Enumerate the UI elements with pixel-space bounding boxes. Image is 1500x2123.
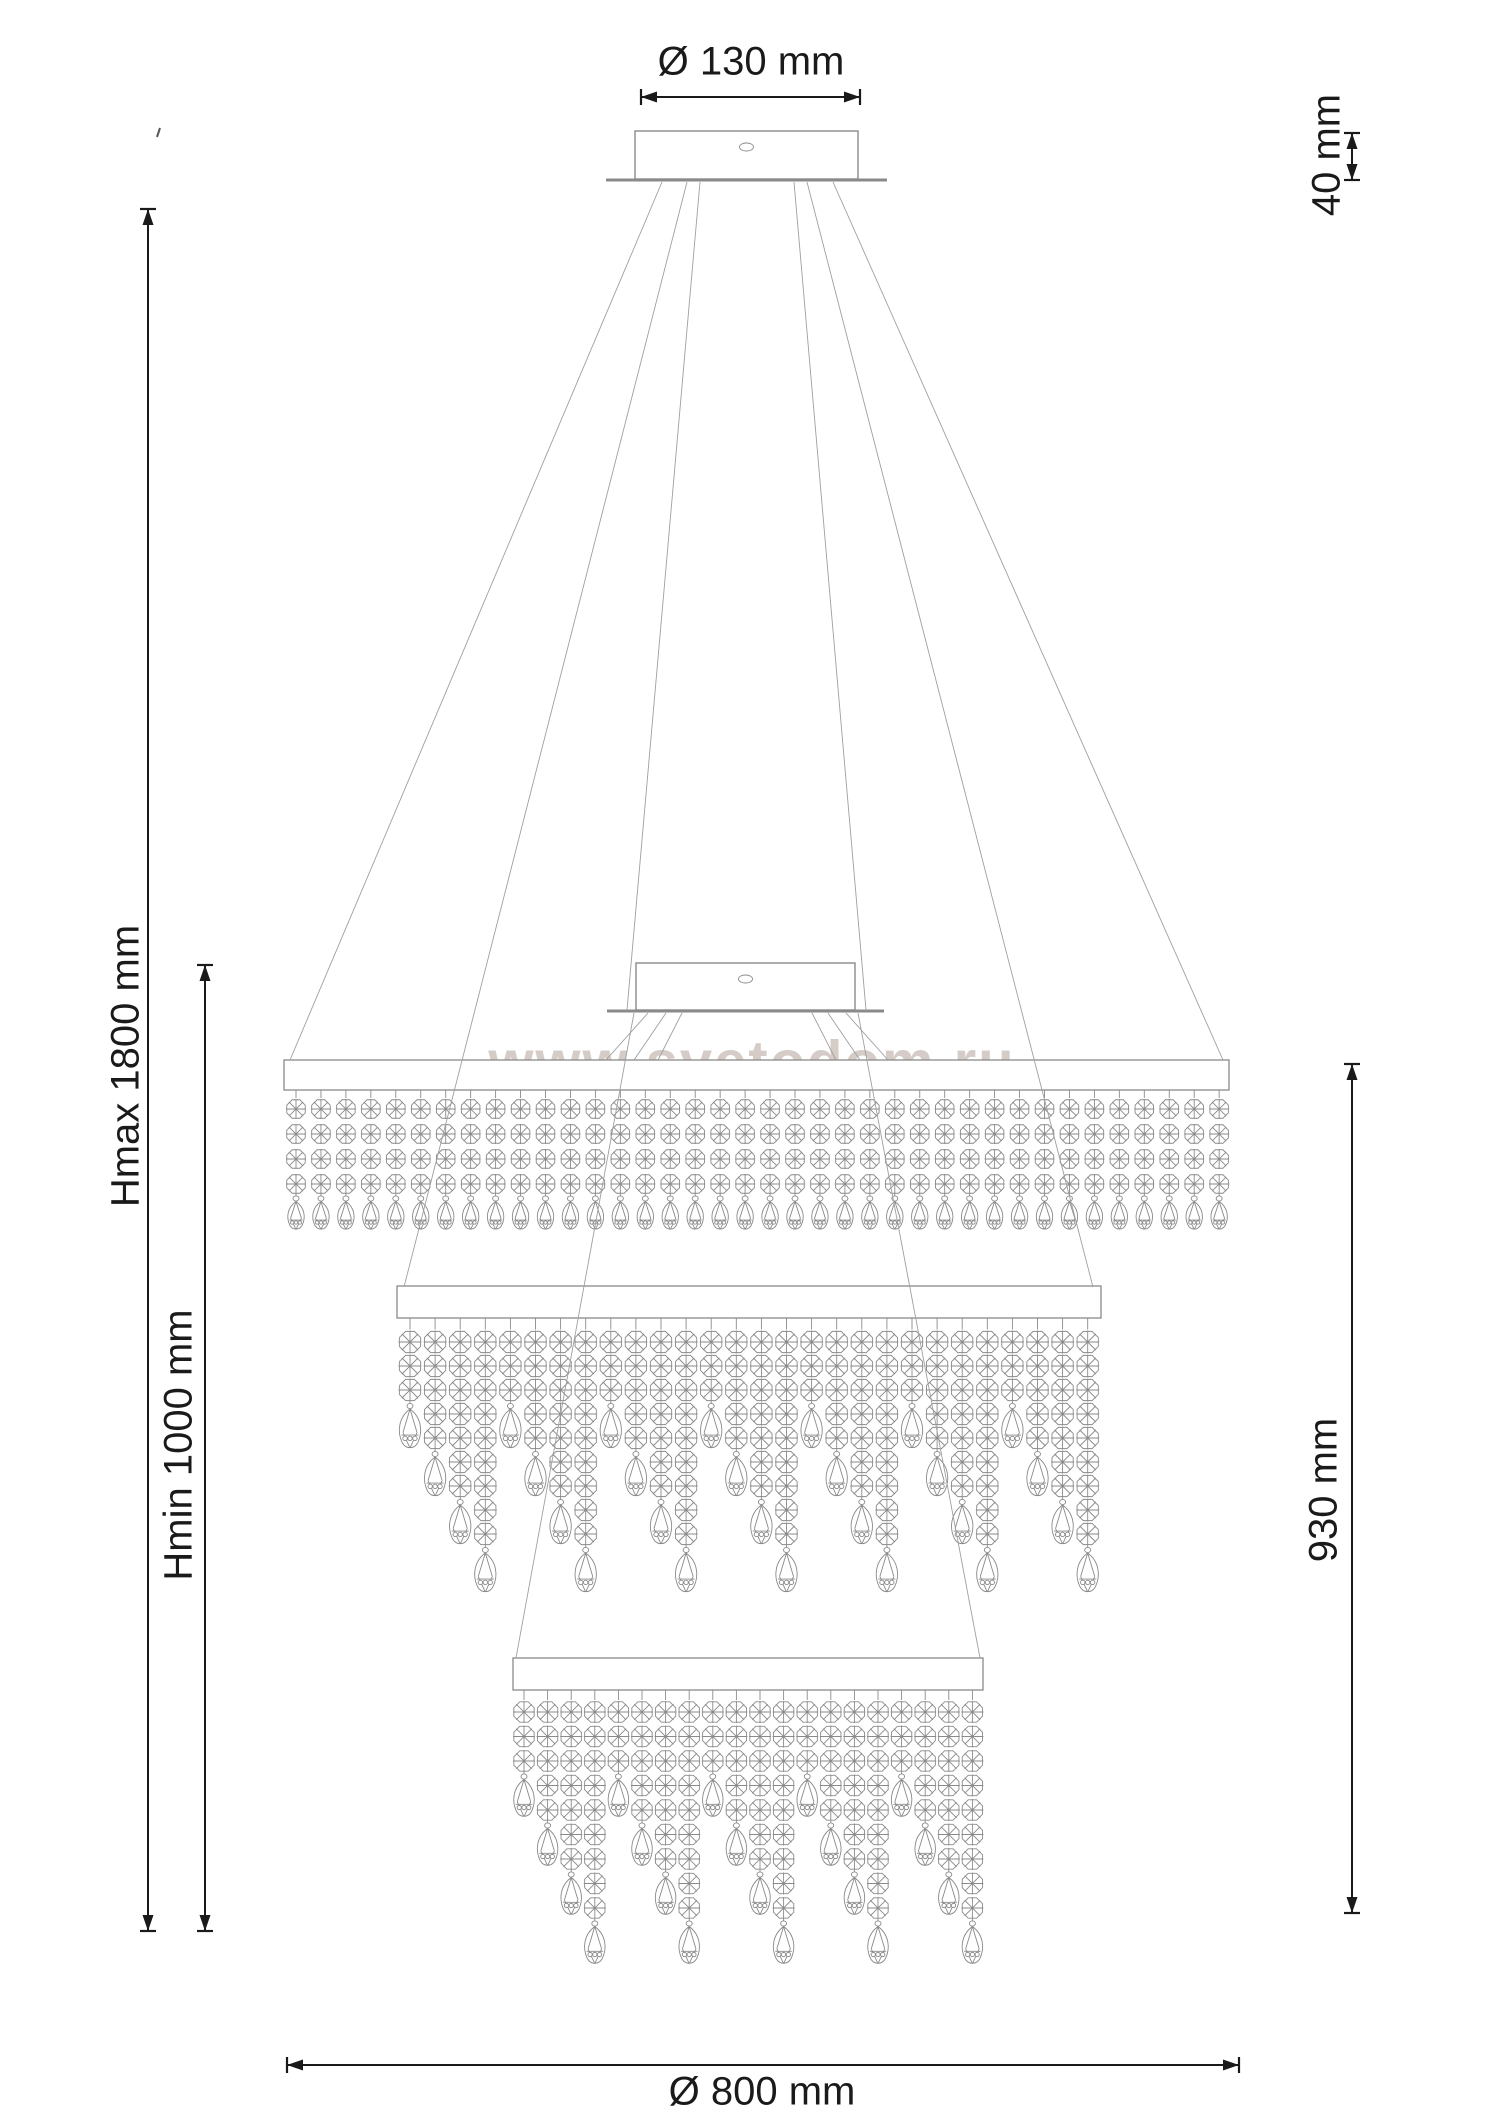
dim-canopy-height-label: 40 mm xyxy=(1305,94,1350,216)
dim-body-diameter-label: Ø 800 mm xyxy=(669,2070,856,2115)
dim-body-height-label: 930 mm xyxy=(1302,1418,1347,1563)
dim-height-max-label: Hmax 1800 mm xyxy=(104,925,149,1207)
chandelier-technical-drawing xyxy=(0,0,1500,2123)
dim-height-min-label: Hmin 1000 mm xyxy=(157,1309,202,1580)
diagram-page: www.svetodom.ru Ø 130 mm 40 mm Hmax 1800… xyxy=(0,0,1500,2123)
dim-canopy-diameter-label: Ø 130 mm xyxy=(658,40,845,85)
